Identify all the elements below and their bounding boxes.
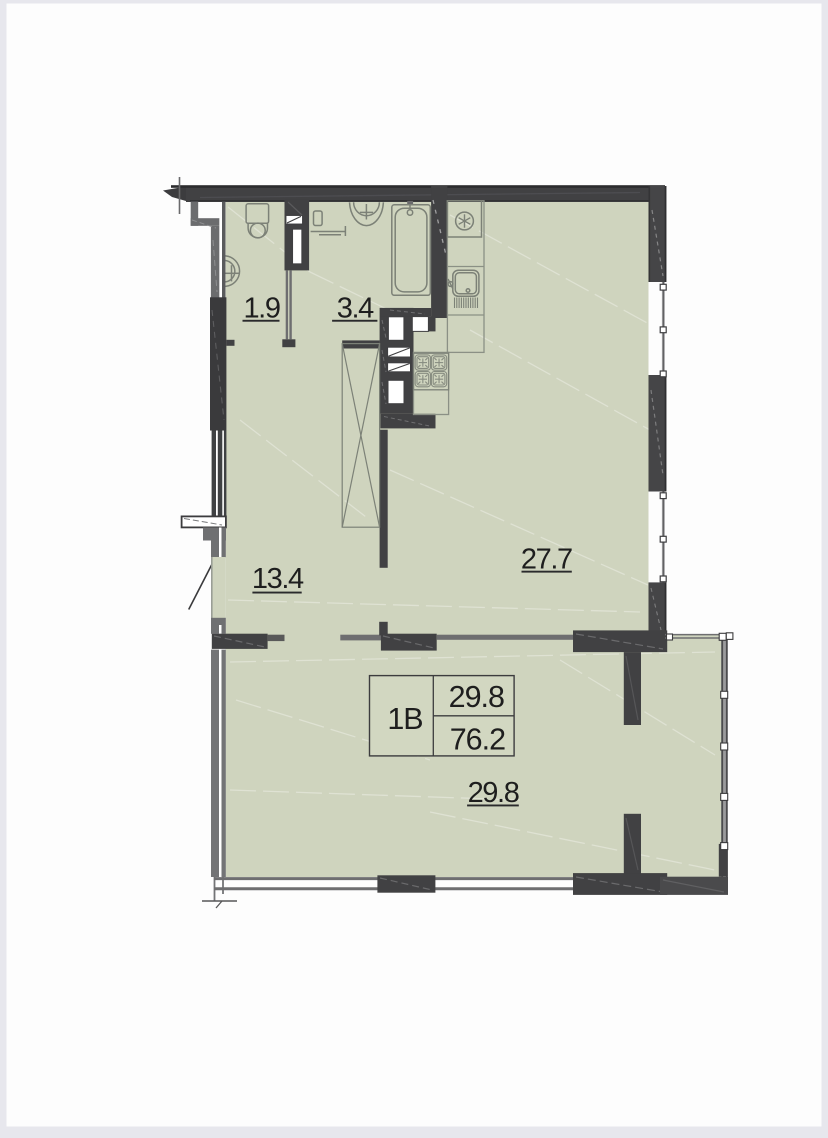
svg-text:3.4: 3.4 <box>337 292 374 324</box>
svg-text:76.2: 76.2 <box>450 722 505 756</box>
svg-text:13.4: 13.4 <box>252 563 304 595</box>
svg-text:1B: 1B <box>387 702 422 736</box>
svg-text:1.9: 1.9 <box>243 292 279 324</box>
svg-text:29.8: 29.8 <box>468 777 519 809</box>
svg-text:29.8: 29.8 <box>449 680 504 714</box>
